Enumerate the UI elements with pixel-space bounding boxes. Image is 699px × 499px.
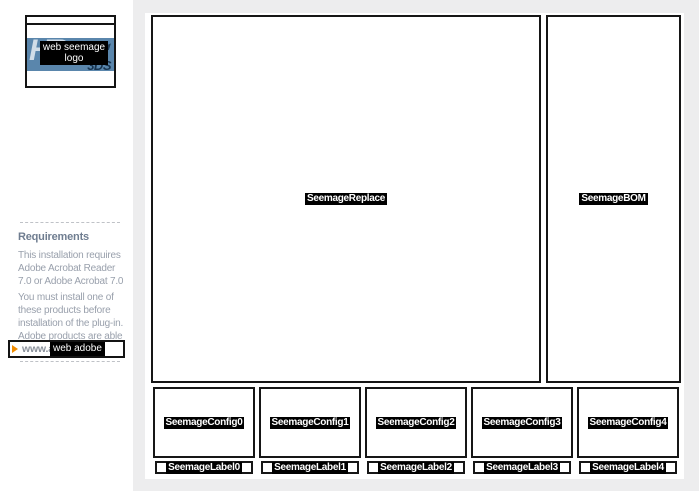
seemage-config0-thumbnail[interactable]: SeemageConfig0	[153, 387, 255, 458]
seemage-config4-thumbnail[interactable]: SeemageConfig4	[577, 387, 679, 458]
logo-alt-text: web seemage logo	[40, 41, 108, 65]
seemage-label3-strip[interactable]: SeemageLabel3	[473, 461, 571, 474]
seemage-config1-thumbnail[interactable]: SeemageConfig1	[259, 387, 361, 458]
para2-line1: You must install one of	[18, 291, 136, 304]
seemage-config1-alt-label: SeemageConfig1	[270, 417, 351, 429]
seemage-config2-thumbnail[interactable]: SeemageConfig2	[365, 387, 467, 458]
adobe-link-alt-label: web adobe	[50, 342, 105, 356]
sidebar-divider-bottom	[20, 361, 120, 362]
seemage-label3-alt-label: SeemageLabel3	[484, 462, 560, 474]
logo-alt-line2: logo	[40, 53, 108, 64]
sidebar-divider-top	[20, 222, 120, 223]
seemage-label1-strip[interactable]: SeemageLabel1	[261, 461, 359, 474]
para1-line3: 7.0 or Adobe Acrobat 7.0	[18, 275, 136, 288]
para2-line2: these products before	[18, 304, 136, 317]
requirements-heading: Requirements	[18, 231, 130, 243]
seemage-label4-alt-label: SeemageLabel4	[590, 462, 666, 474]
seemage-bom-placeholder: SeemageBOM	[546, 15, 681, 383]
adobe-website-link[interactable]: www.adobe.com web adobe	[8, 340, 125, 358]
seemage-config3-alt-label: SeemageConfig3	[482, 417, 563, 429]
seemage-config3-thumbnail[interactable]: SeemageConfig3	[471, 387, 573, 458]
seemage-replace-placeholder: SeemageReplace	[151, 15, 541, 383]
seemage-config0-alt-label: SeemageConfig0	[164, 417, 245, 429]
para2-line3: installation of the plug-in.	[18, 317, 136, 330]
seemage-replace-alt-label: SeemageReplace	[305, 193, 387, 205]
seemage-bom-alt-label: SeemageBOM	[579, 193, 647, 205]
para1-line2: Adobe Acrobat Reader	[18, 262, 136, 275]
seemage-label2-strip[interactable]: SeemageLabel2	[367, 461, 465, 474]
para1-line1: This installation requires	[18, 249, 136, 262]
seemage-config4-alt-label: SeemageConfig4	[588, 417, 669, 429]
seemage-label4-strip[interactable]: SeemageLabel4	[579, 461, 677, 474]
seemage-label0-alt-label: SeemageLabel0	[166, 462, 242, 474]
logo-alt-line1: web seemage	[40, 42, 108, 53]
brand-logo: HR 3DS web seemage logo	[25, 15, 116, 88]
seemage-label0-strip[interactable]: SeemageLabel0	[155, 461, 253, 474]
seemage-label1-alt-label: SeemageLabel1	[272, 462, 348, 474]
seemage-config2-alt-label: SeemageConfig2	[376, 417, 457, 429]
page: { "logo": { "alt_line1": "web seemage", …	[0, 0, 699, 499]
logo-top-rule	[27, 23, 114, 25]
requirements-paragraph-1: This installation requires Adobe Acrobat…	[18, 249, 136, 288]
seemage-label2-alt-label: SeemageLabel2	[378, 462, 454, 474]
link-arrow-icon	[12, 345, 18, 353]
